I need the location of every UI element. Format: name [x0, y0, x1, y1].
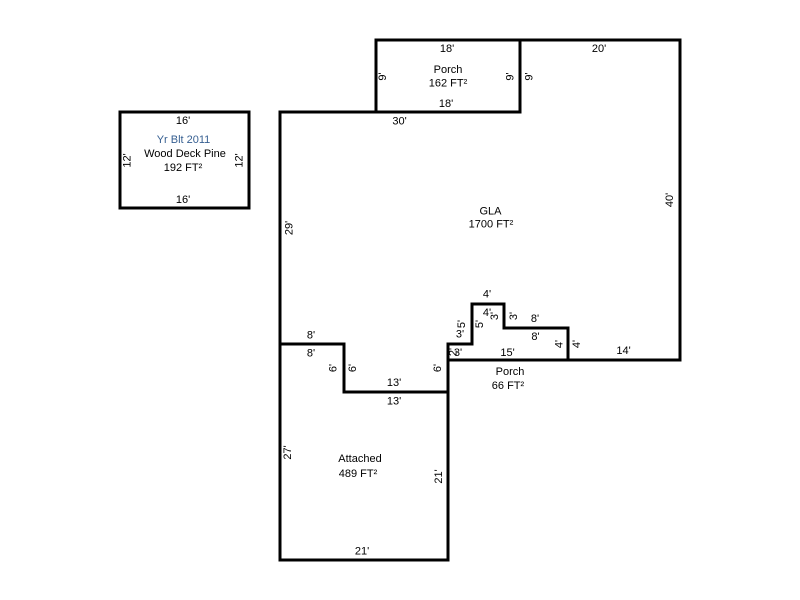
svg-text:4': 4' [571, 340, 583, 348]
svg-text:8': 8' [531, 331, 539, 343]
svg-text:13': 13' [387, 377, 401, 389]
svg-text:14': 14' [616, 345, 630, 357]
svg-text:3': 3' [508, 312, 520, 320]
svg-text:16': 16' [176, 115, 190, 127]
svg-text:Wood Deck Pine: Wood Deck Pine [144, 148, 226, 160]
svg-text:9': 9' [377, 72, 389, 80]
svg-text:4': 4' [554, 340, 566, 348]
svg-text:29': 29' [284, 221, 296, 235]
svg-text:Attached: Attached [338, 453, 381, 465]
svg-text:20': 20' [592, 43, 606, 55]
svg-text:6': 6' [432, 364, 444, 372]
svg-text:21': 21' [433, 469, 445, 483]
svg-text:192 FT²: 192 FT² [164, 162, 203, 174]
svg-text:40': 40' [664, 193, 676, 207]
svg-text:21': 21' [355, 546, 369, 558]
svg-text:27': 27' [282, 445, 294, 459]
svg-text:18': 18' [439, 98, 453, 110]
svg-text:6': 6' [328, 364, 340, 372]
svg-text:3': 3' [456, 329, 464, 341]
svg-text:4': 4' [483, 289, 491, 301]
svg-text:5': 5' [474, 320, 486, 328]
svg-text:8': 8' [531, 313, 539, 325]
svg-text:Porch: Porch [434, 64, 463, 76]
svg-text:13': 13' [387, 396, 401, 408]
svg-text:8': 8' [307, 330, 315, 342]
svg-text:9': 9' [524, 72, 536, 80]
svg-text:12': 12' [234, 153, 246, 167]
svg-text:15': 15' [500, 347, 514, 359]
svg-text:66 FT²: 66 FT² [492, 380, 525, 392]
svg-text:9': 9' [505, 72, 517, 80]
svg-text:6': 6' [347, 364, 359, 372]
svg-text:30': 30' [392, 116, 406, 128]
svg-text:8': 8' [307, 348, 315, 360]
svg-text:Porch: Porch [496, 366, 525, 378]
svg-text:Yr Blt 2011: Yr Blt 2011 [157, 134, 211, 146]
svg-text:12': 12' [122, 153, 134, 167]
svg-text:2': 2' [448, 348, 460, 356]
svg-text:GLA: GLA [479, 206, 502, 218]
svg-text:16': 16' [176, 194, 190, 206]
svg-text:5': 5' [456, 320, 468, 328]
svg-text:1700 FT²: 1700 FT² [469, 219, 514, 231]
svg-text:489 FT²: 489 FT² [339, 468, 378, 480]
svg-text:3': 3' [489, 312, 501, 320]
svg-text:18': 18' [440, 43, 454, 55]
svg-text:162 FT²: 162 FT² [429, 78, 468, 90]
